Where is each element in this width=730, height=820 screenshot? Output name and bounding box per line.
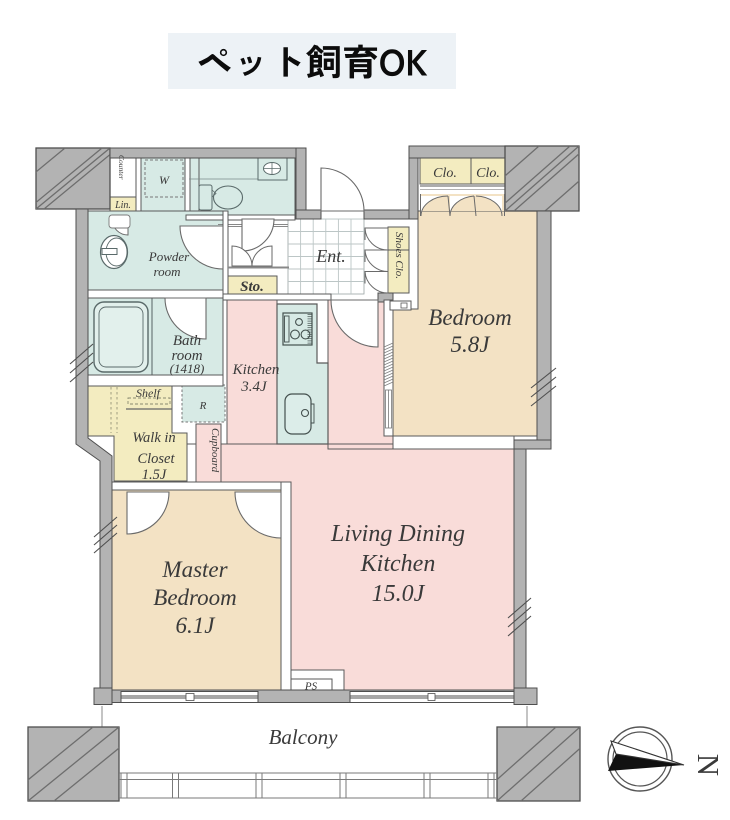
svg-text:Shelf: Shelf: [136, 386, 162, 400]
svg-text:Bath: Bath: [173, 333, 201, 349]
svg-text:6.1J: 6.1J: [176, 613, 217, 638]
svg-text:Clo.: Clo.: [476, 166, 500, 181]
svg-text:Balcony: Balcony: [269, 725, 338, 749]
svg-text:Clo.: Clo.: [433, 166, 457, 181]
svg-text:15.0J: 15.0J: [372, 581, 426, 607]
svg-text:Shoes Clo.: Shoes Clo.: [393, 232, 405, 279]
svg-text:Living Dining: Living Dining: [330, 521, 465, 547]
svg-text:3.4J: 3.4J: [240, 379, 268, 395]
svg-text:1.5J: 1.5J: [142, 467, 167, 483]
svg-text:Sto.: Sto.: [240, 279, 264, 295]
svg-text:Closet: Closet: [137, 451, 175, 467]
svg-text:Counter: Counter: [117, 155, 126, 180]
svg-text:(1418): (1418): [170, 361, 205, 376]
svg-text:Cupboard: Cupboard: [209, 428, 221, 473]
svg-text:PS: PS: [304, 681, 318, 693]
svg-text:Ent.: Ent.: [315, 246, 346, 266]
svg-text:room: room: [154, 264, 181, 279]
svg-text:N: N: [691, 754, 726, 776]
svg-text:Bedroom: Bedroom: [428, 305, 511, 330]
svg-text:Bedroom: Bedroom: [153, 585, 236, 610]
svg-text:Kitchen: Kitchen: [232, 362, 280, 378]
svg-text:5.8J: 5.8J: [451, 332, 492, 357]
svg-text:Master: Master: [161, 557, 228, 582]
svg-text:W: W: [159, 173, 170, 187]
svg-text:Lin.: Lin.: [114, 200, 131, 211]
svg-text:Walk in: Walk in: [132, 430, 175, 446]
svg-text:Powder: Powder: [148, 249, 190, 264]
svg-text:R: R: [199, 400, 207, 412]
svg-text:Kitchen: Kitchen: [360, 551, 436, 577]
